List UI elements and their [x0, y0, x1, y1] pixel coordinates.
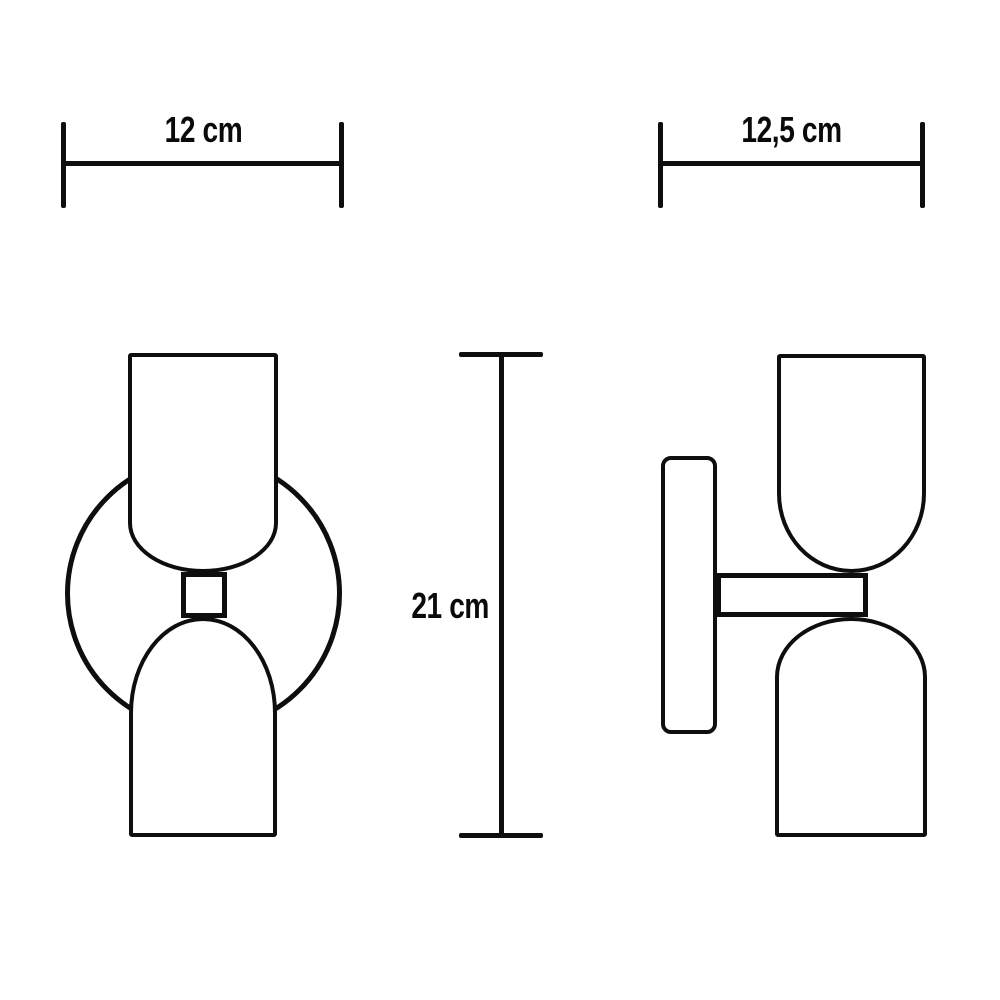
height-dimension-label: 21 cm — [365, 588, 489, 624]
front-width-dimension-tick-right — [339, 122, 344, 208]
side-depth-dimension-label: 12,5 cm — [689, 110, 894, 150]
technical-drawing-canvas: 12 cm 12,5 cm 21 cm — [0, 0, 1000, 1000]
side-depth-dimension-tick-right — [920, 122, 925, 208]
side-mounting-arm — [716, 573, 868, 617]
height-dimension-line — [499, 354, 504, 836]
side-top-shade — [777, 354, 926, 573]
front-width-dimension-label: 12 cm — [94, 110, 313, 150]
front-width-dimension-line — [63, 161, 342, 166]
side-depth-dimension-line — [660, 161, 923, 166]
front-connector-block — [181, 572, 227, 618]
side-wall-plate — [661, 456, 717, 734]
height-dimension-tick-bottom — [459, 833, 543, 838]
side-bottom-shade — [775, 617, 927, 837]
front-top-shade — [128, 353, 278, 573]
front-bottom-shade — [129, 617, 277, 837]
